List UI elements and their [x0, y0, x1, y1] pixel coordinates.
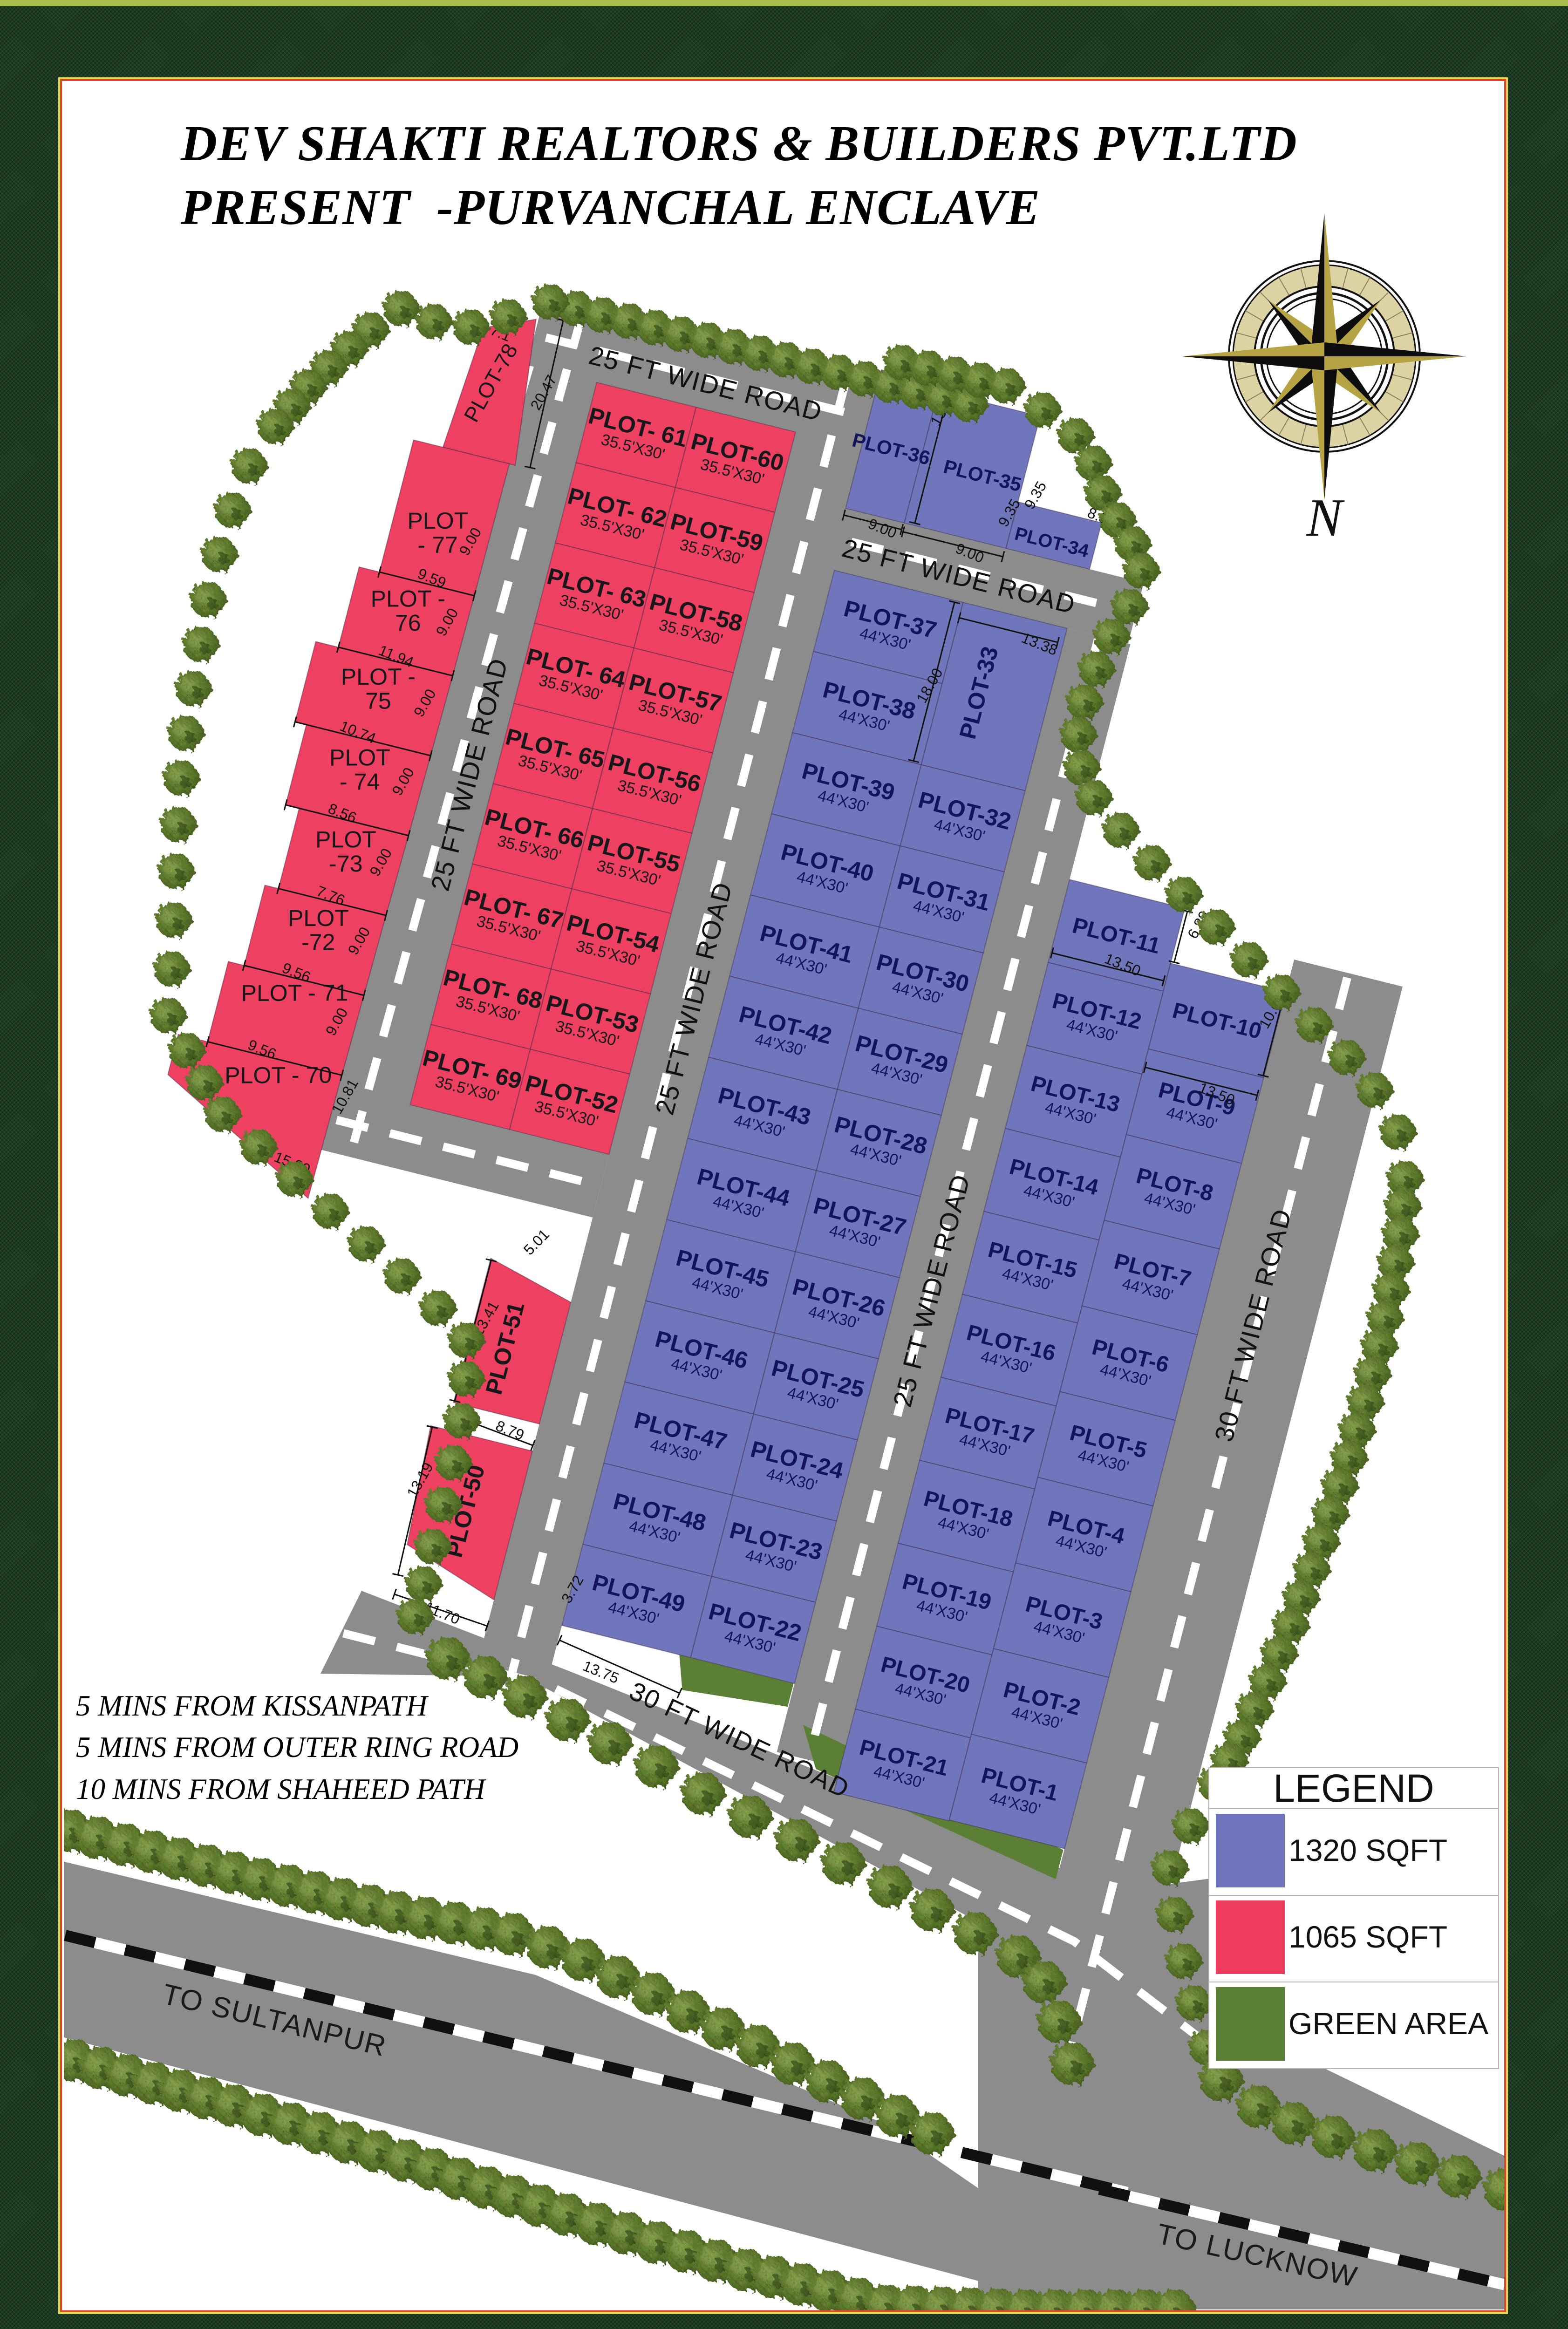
svg-text:PLOT: PLOT — [288, 905, 349, 931]
svg-text:PLOT - 71: PLOT - 71 — [241, 980, 348, 1006]
svg-text:8.79: 8.79 — [493, 1417, 526, 1444]
svg-text:PLOT -: PLOT - — [371, 586, 446, 612]
svg-text:- 74: - 74 — [340, 769, 380, 795]
svg-text:N: N — [1306, 488, 1345, 547]
svg-text:PLOT: PLOT — [329, 744, 390, 770]
svg-text:PLOT: PLOT — [407, 508, 468, 534]
svg-text:-72: -72 — [301, 929, 335, 955]
svg-text:PLOT: PLOT — [315, 826, 376, 852]
svg-text:5.01: 5.01 — [520, 1226, 552, 1259]
svg-text:- 77: - 77 — [417, 532, 457, 558]
svg-text:-73: -73 — [329, 851, 363, 877]
svg-text:PLOT - 70: PLOT - 70 — [225, 1062, 332, 1089]
svg-text:76: 76 — [395, 610, 421, 636]
svg-text:75: 75 — [365, 688, 391, 714]
